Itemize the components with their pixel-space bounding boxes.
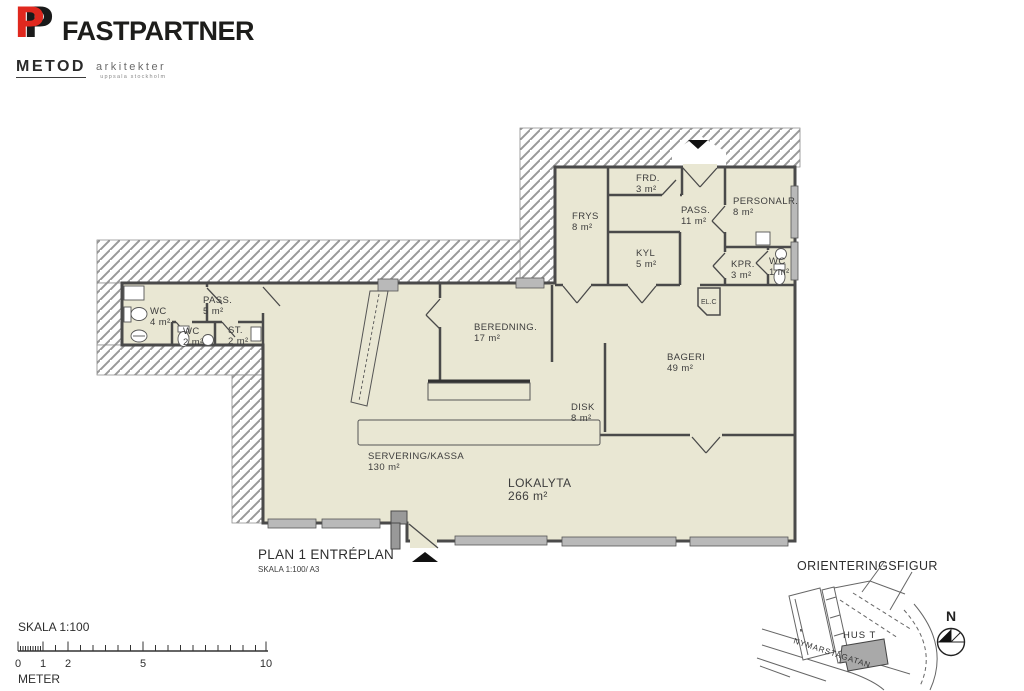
floorplan-sheet: P P FASTPARTNER METOD arkitekter uppsala… xyxy=(0,0,1024,691)
room-label: 11 m² xyxy=(681,216,707,227)
room-label: WC xyxy=(183,326,200,337)
room-label: DISK xyxy=(571,402,595,413)
building-label: HUS T xyxy=(843,630,876,641)
room-label: 17 m² xyxy=(474,333,500,344)
room-label: FRD. xyxy=(636,173,660,184)
room-label: 3 m² xyxy=(731,270,752,281)
room-label: LOKALYTA xyxy=(508,476,571,490)
room-label: 49 m² xyxy=(667,363,693,374)
fastpartner-logo-icon: P P xyxy=(14,8,54,54)
room-label: 3 m² xyxy=(636,184,657,195)
room-label: 266 m² xyxy=(508,489,548,503)
bottom-entrance-arrow-icon xyxy=(412,552,438,562)
room-label: KYL xyxy=(636,248,655,259)
scale-title: SKALA 1:100 xyxy=(18,620,90,634)
scale-bar: SKALA 1:100 012510 METER xyxy=(15,620,272,686)
room-label: ST. xyxy=(228,325,243,336)
room-label: 5 m² xyxy=(203,306,224,317)
scale-number: 10 xyxy=(260,658,272,670)
room-label: 8 m² xyxy=(571,413,592,424)
scale-number: 0 xyxy=(15,658,21,670)
room-label: 4 m² xyxy=(150,317,171,328)
scale-unit: METER xyxy=(18,672,60,686)
floorplan-drawing: EL.C WC4 m²PASS.5 m²WC2 m²ST.2 m xyxy=(0,0,1024,691)
scale-number: 5 xyxy=(140,658,146,670)
orientation-title: ORIENTERINGSFIGUR xyxy=(797,559,938,573)
title-block: P P FASTPARTNER METOD arkitekter uppsala… xyxy=(14,8,254,80)
room-label: 8 m² xyxy=(733,207,754,218)
room-label: 130 m² xyxy=(368,462,400,473)
logo-glyph: P xyxy=(14,2,45,44)
room-label: 1 m² xyxy=(769,267,790,278)
site-plan xyxy=(757,562,937,690)
room-label: PERSONALR. xyxy=(733,196,798,207)
compass-icon: N xyxy=(938,608,965,656)
scale-number: 2 xyxy=(65,658,71,670)
entrance-pillar xyxy=(391,511,407,549)
room-label: PASS. xyxy=(203,295,232,306)
room-label: PASS. xyxy=(681,205,710,216)
plan-title: PLAN 1 ENTRÉPLAN xyxy=(258,547,394,562)
room-label: 8 m² xyxy=(572,222,593,233)
room-label: WC xyxy=(150,306,167,317)
room-label: BAGERI xyxy=(667,352,705,363)
compass-north-label: N xyxy=(946,608,956,624)
room-label: 2 m² xyxy=(228,336,249,347)
orientation-figure: ORIENTERINGSFIGUR HUS T xyxy=(757,559,965,690)
plan-subtitle: SKALA 1:100/ A3 xyxy=(258,565,320,574)
architect-name: METOD xyxy=(16,58,86,78)
room-label: 2 m² xyxy=(183,337,204,348)
room-label: FRYS xyxy=(572,211,599,222)
room-label: KPR. xyxy=(731,259,755,270)
electrical-closet-label: EL.C xyxy=(701,299,717,306)
room-label: 5 m² xyxy=(636,259,657,270)
room-label: SERVERING/KASSA xyxy=(368,451,464,462)
scale-number: 1 xyxy=(40,658,46,670)
architect-suffix: arkitekter xyxy=(96,61,166,73)
room-label: BEREDNING. xyxy=(474,322,537,333)
architect-cities: uppsala stockholm xyxy=(100,74,166,80)
room-label: WC xyxy=(769,256,786,267)
company-name: FASTPARTNER xyxy=(62,16,254,47)
